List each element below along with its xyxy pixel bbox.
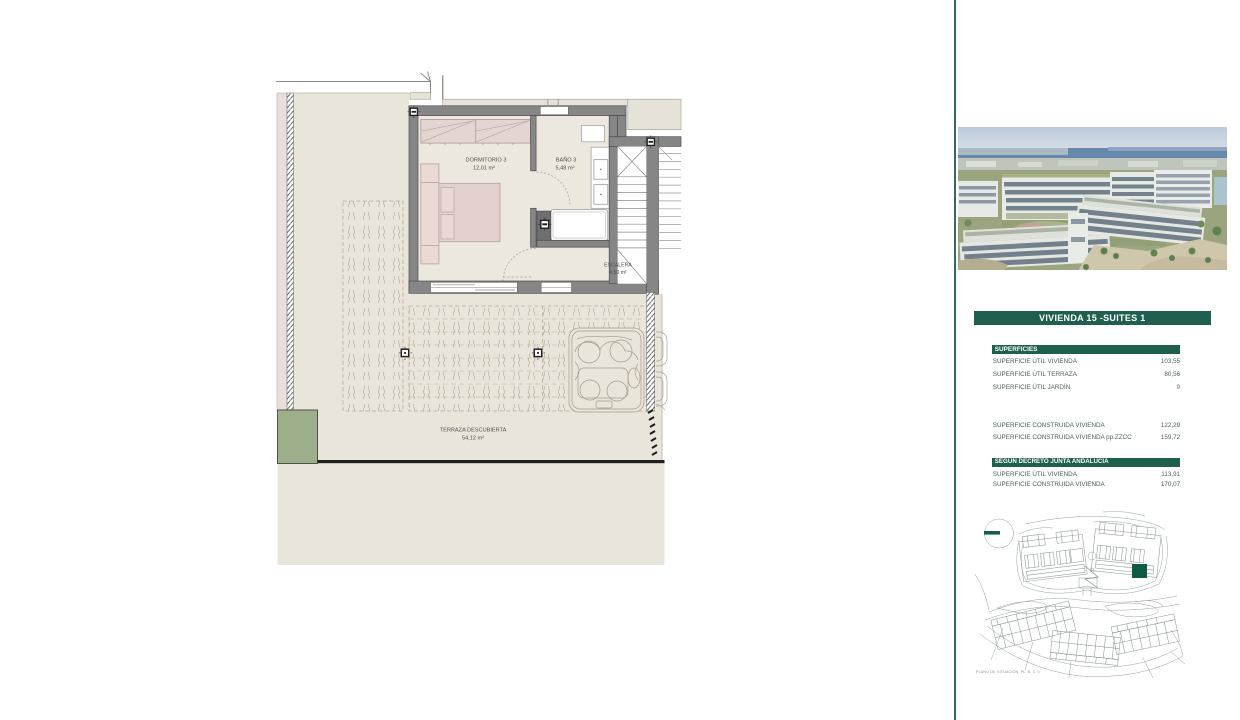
svg-text:5,48 m²: 5,48 m²	[556, 166, 575, 172]
svg-text:54,12 m²: 54,12 m²	[462, 436, 484, 442]
svg-text:12,01 m²: 12,01 m²	[473, 166, 495, 172]
svg-text:4,50 m²: 4,50 m²	[609, 270, 627, 276]
svg-text:ESCALERA: ESCALERA	[604, 263, 632, 269]
svg-text:TERRAZA DESCUBIERTA: TERRAZA DESCUBIERTA	[440, 428, 507, 434]
svg-text:BAÑO 3: BAÑO 3	[556, 157, 577, 164]
svg-text:DORMITORIO 3: DORMITORIO 3	[466, 158, 507, 164]
